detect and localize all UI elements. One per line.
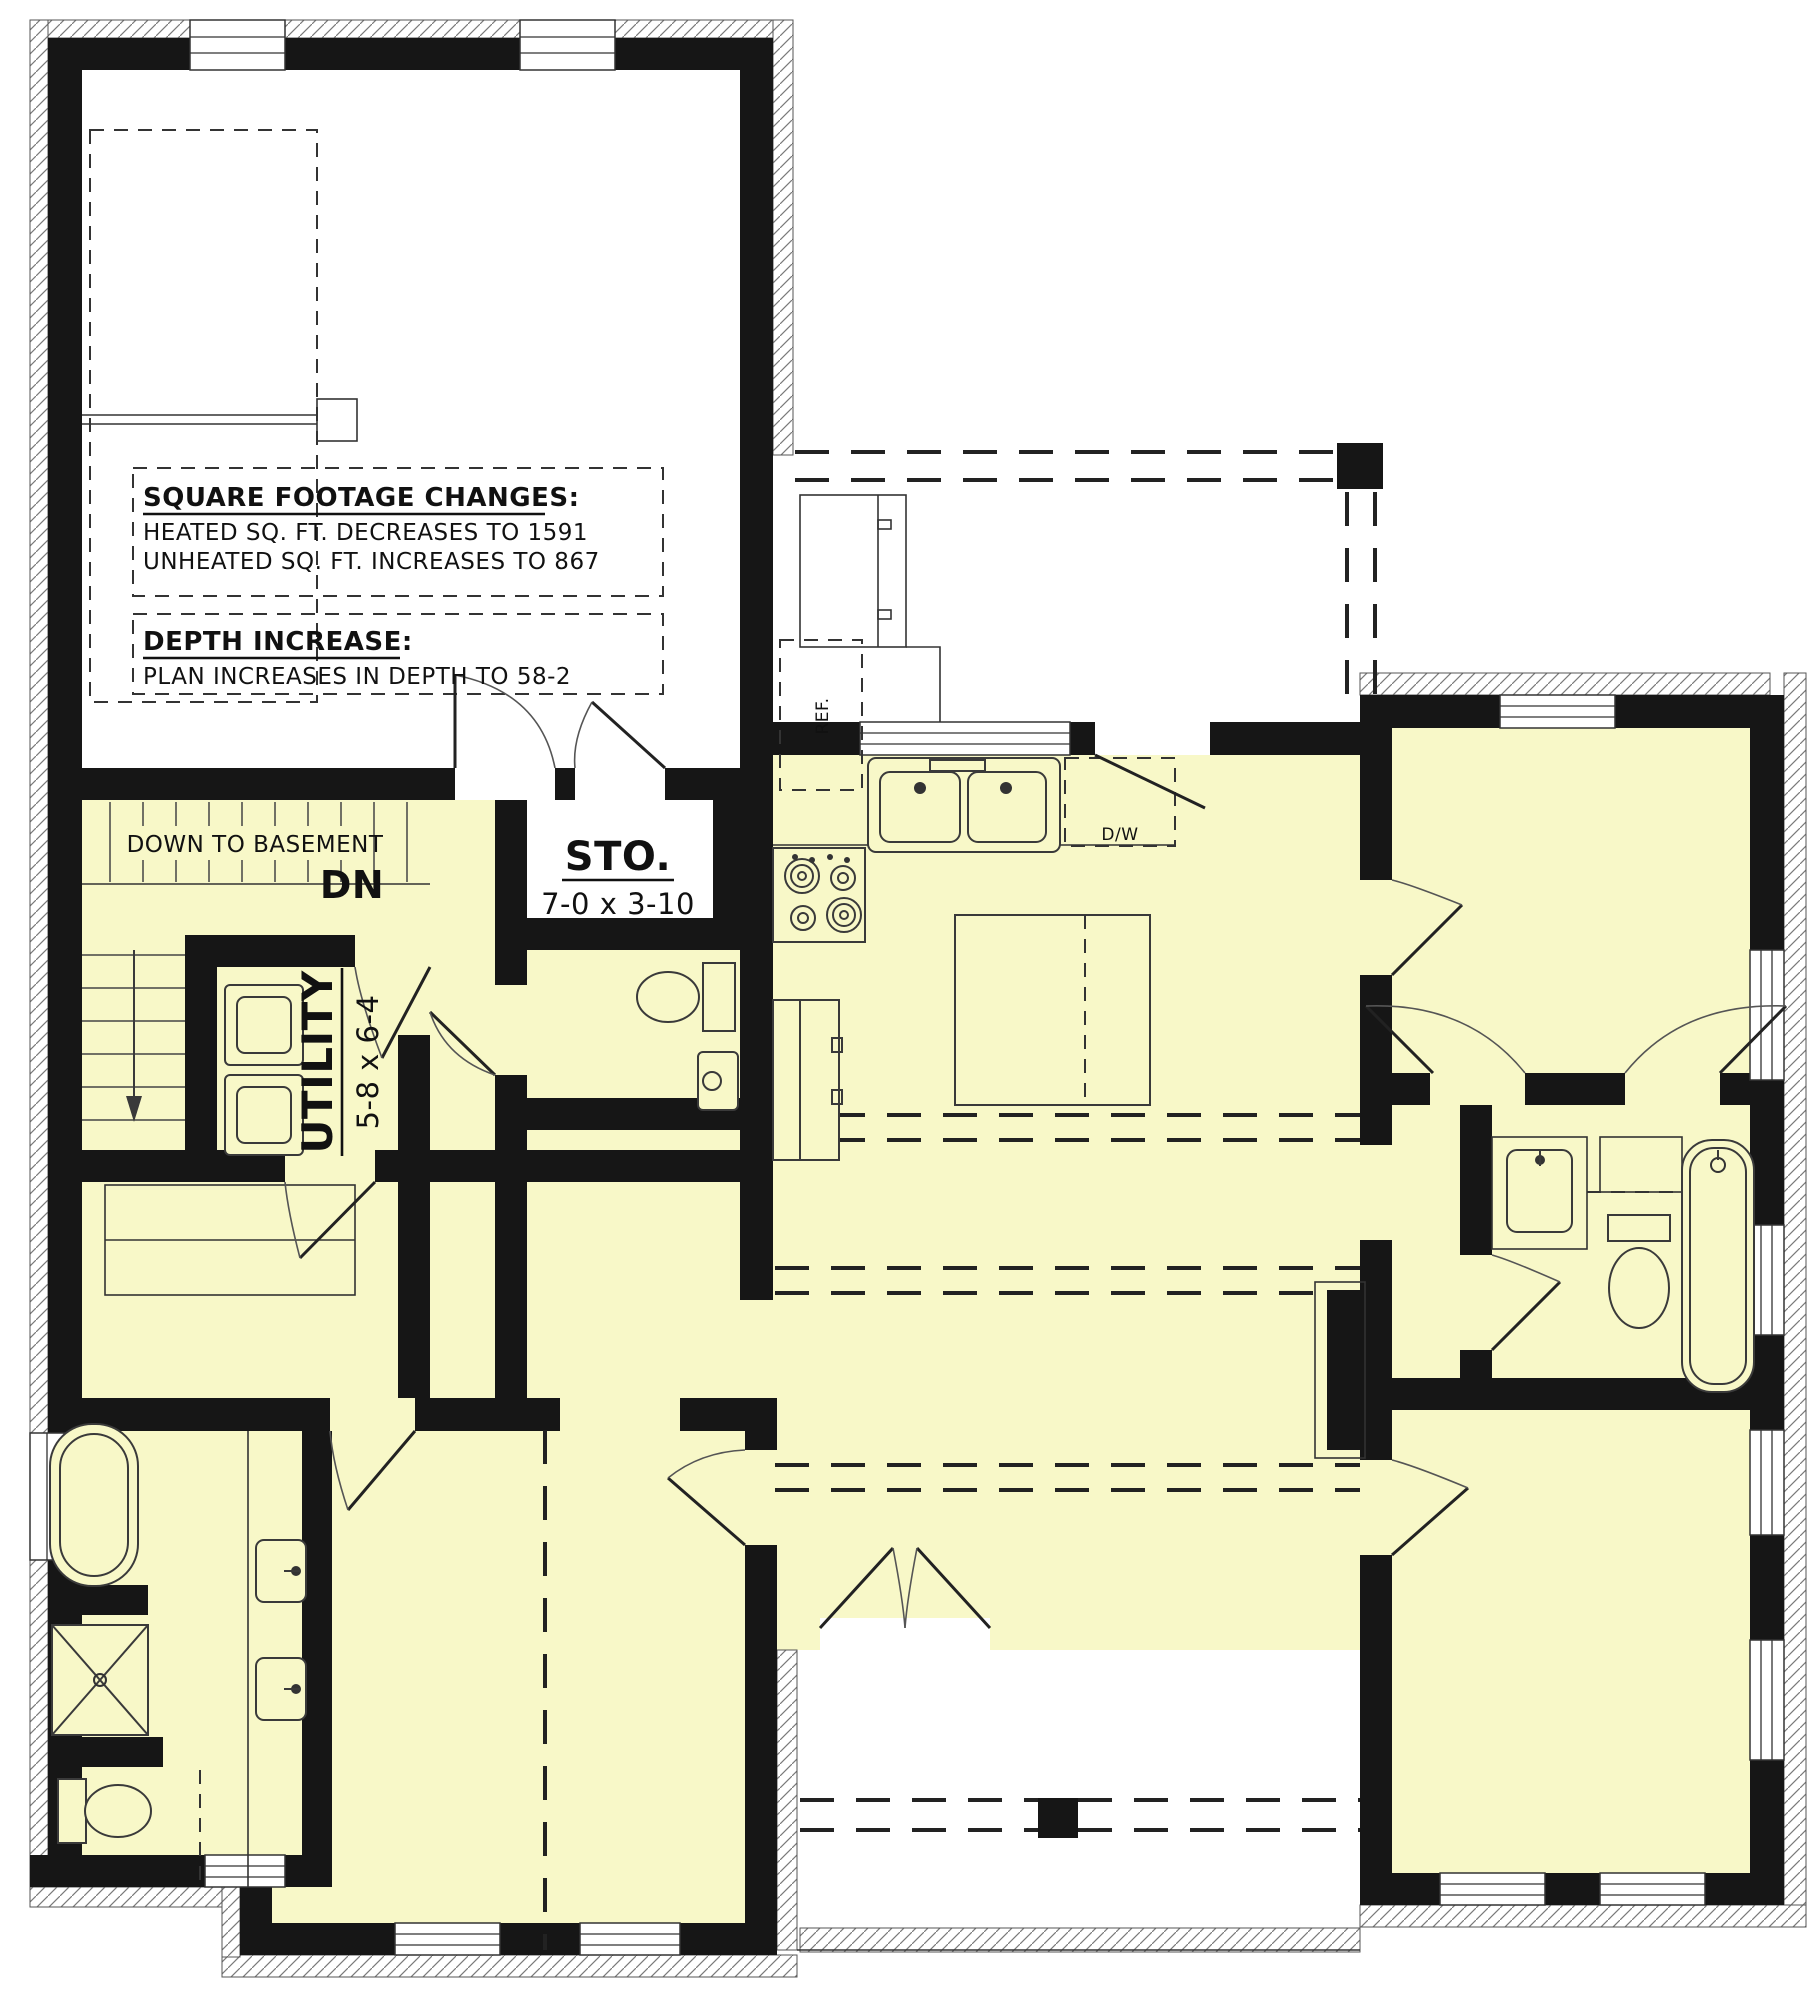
range [773, 848, 865, 942]
storage-label: STO. [565, 834, 671, 880]
garage-window-2 [520, 20, 615, 70]
utility-label: UTILITY [293, 970, 342, 1153]
sqft-note-line1: HEATED SQ. FT. DECREASES TO 1591 [143, 520, 588, 546]
sqft-note-title: SQUARE FOOTAGE CHANGES: [143, 483, 580, 513]
halfbath-toilet [637, 972, 699, 1022]
bedroom2-right-wall [398, 1182, 430, 1430]
wing-bottom-window-1 [1440, 1873, 1545, 1905]
garage-top-wall [48, 38, 762, 70]
utility-left-wall [185, 935, 217, 1182]
masterbath-toilet [58, 1779, 151, 1843]
wingbath-tub [1682, 1140, 1754, 1392]
bath-bottom-window [205, 1855, 285, 1887]
garage-kitchen-wall [740, 38, 773, 1430]
right-wing-bottom-wall [1360, 1873, 1784, 1905]
master-bottom-wall [240, 1923, 777, 1955]
bedroom2-top-wall [82, 1150, 740, 1182]
bath-bedroom-divider [302, 1430, 332, 1887]
wing-bottom-window-2 [1600, 1873, 1705, 1905]
halfbath-toilet-tank [703, 963, 735, 1031]
master-bottom-window-2 [580, 1923, 680, 1955]
masterbath-bottom-wall [30, 1855, 332, 1887]
floor-plan-page: SQUARE FOOTAGE CHANGES: HEATED SQ. FT. D… [0, 0, 1809, 2000]
right-window-3 [1750, 1430, 1784, 1535]
kitchen-sink-window [860, 722, 1070, 755]
dishwasher-label: D/W [1101, 825, 1138, 845]
garage-window-1 [190, 20, 285, 70]
storage-dims: 7-0 x 3-10 [541, 887, 695, 921]
utility-dims: 5-8 x 6-4 [351, 995, 385, 1130]
kitchen-cabinet [773, 1000, 842, 1160]
right-window-4 [1750, 1640, 1784, 1760]
floor-plan-drawing: SQUARE FOOTAGE CHANGES: HEATED SQ. FT. D… [0, 0, 1809, 2000]
storage-bottom-wall [495, 918, 740, 950]
sqft-note-line2: UNHEATED SQ. FT. INCREASES TO 867 [143, 549, 600, 575]
tub-shower-stub [48, 1585, 148, 1615]
right-window-2 [1750, 1225, 1784, 1335]
vanity-sink-2 [256, 1658, 306, 1720]
vanity-sink-1 [256, 1540, 306, 1602]
refrigerator-label: REF. [813, 697, 833, 734]
wingbath-toilet [1608, 1215, 1670, 1328]
master-bottom-window-1 [395, 1923, 500, 1955]
utility-top-wall [185, 935, 355, 967]
kitchen-island [955, 915, 1150, 1105]
kitchen-sink [868, 758, 1060, 852]
shower-toilet-stub [48, 1737, 163, 1767]
depth-note-line1: PLAN INCREASES IN DEPTH TO 58-2 [143, 664, 571, 690]
freestanding-tub [50, 1424, 138, 1586]
stairs-dn-label: DN [320, 863, 384, 907]
front-porch-column [1038, 1798, 1078, 1838]
depth-note-title: DEPTH INCREASE: [143, 627, 413, 657]
shower [52, 1625, 148, 1735]
stairs-label: DOWN TO BASEMENT [127, 832, 384, 858]
rear-porch-column [1337, 443, 1383, 489]
wing-top-window [1500, 695, 1615, 728]
